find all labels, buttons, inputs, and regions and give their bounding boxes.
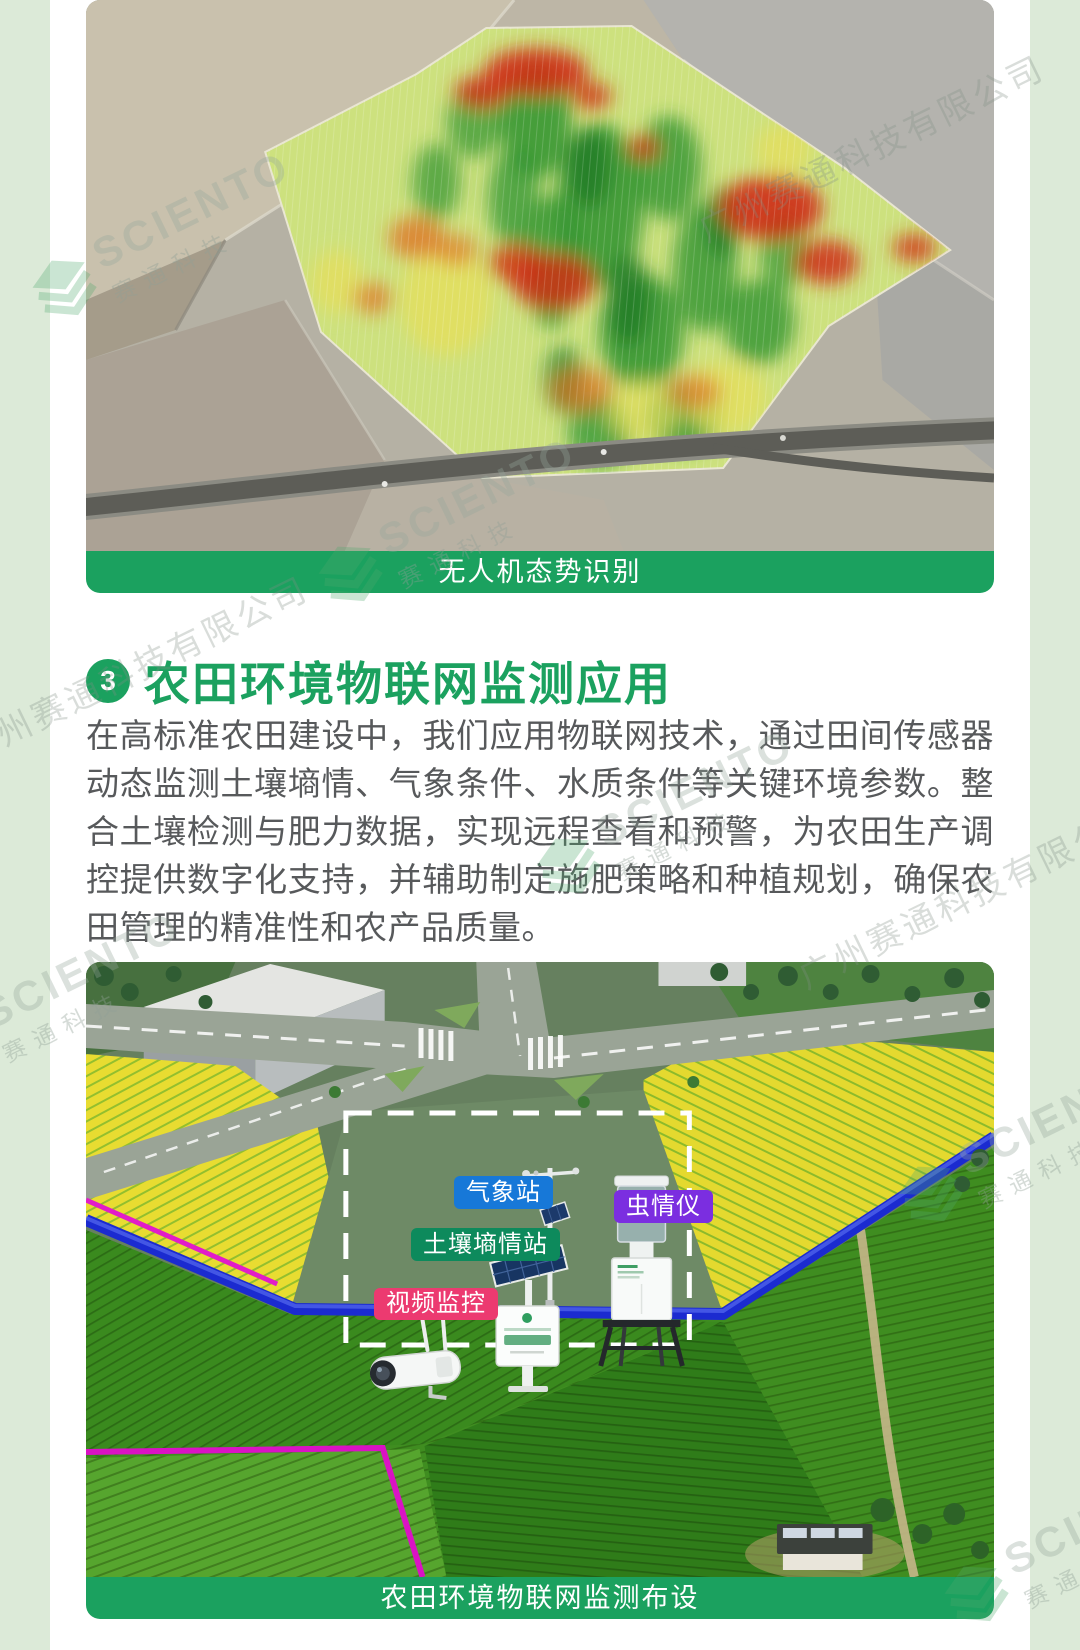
ndvi-scene bbox=[86, 0, 994, 551]
label-soil-moisture-station: 土壤墒情站 bbox=[411, 1228, 560, 1261]
iot-scene bbox=[86, 962, 994, 1577]
figure1-caption: 无人机态势识别 bbox=[86, 551, 994, 593]
figure-uav-ndvi: 无人机态势识别 bbox=[86, 0, 994, 593]
section-body-text: 在高标准农田建设中，我们应用物联网技术，通过田间传感器动态监测土壤墒情、气象条件… bbox=[86, 712, 994, 952]
section-number-badge: 3 bbox=[86, 659, 130, 703]
section-title: 农田环境物联网监测应用 bbox=[144, 648, 672, 714]
uav-ndvi-photo bbox=[86, 0, 994, 551]
label-insect-monitor: 虫情仪 bbox=[614, 1190, 713, 1223]
label-video-surveillance: 视频监控 bbox=[374, 1288, 498, 1320]
figure2-caption: 农田环境物联网监测布设 bbox=[86, 1577, 994, 1619]
page: 无人机态势识别 3 农田环境物联网监测应用 在高标准农田建设中，我们应用物联网技… bbox=[0, 0, 1080, 1650]
iot-scene-photo: 气象站 虫情仪 土壤墒情站 视频监控 bbox=[86, 962, 994, 1577]
section-heading: 3 农田环境物联网监测应用 bbox=[86, 648, 672, 714]
figure-iot-scene: 气象站 虫情仪 土壤墒情站 视频监控 农田环境物联网监测布设 bbox=[86, 962, 994, 1619]
label-weather-station: 气象站 bbox=[454, 1176, 553, 1209]
small-building bbox=[658, 962, 746, 986]
